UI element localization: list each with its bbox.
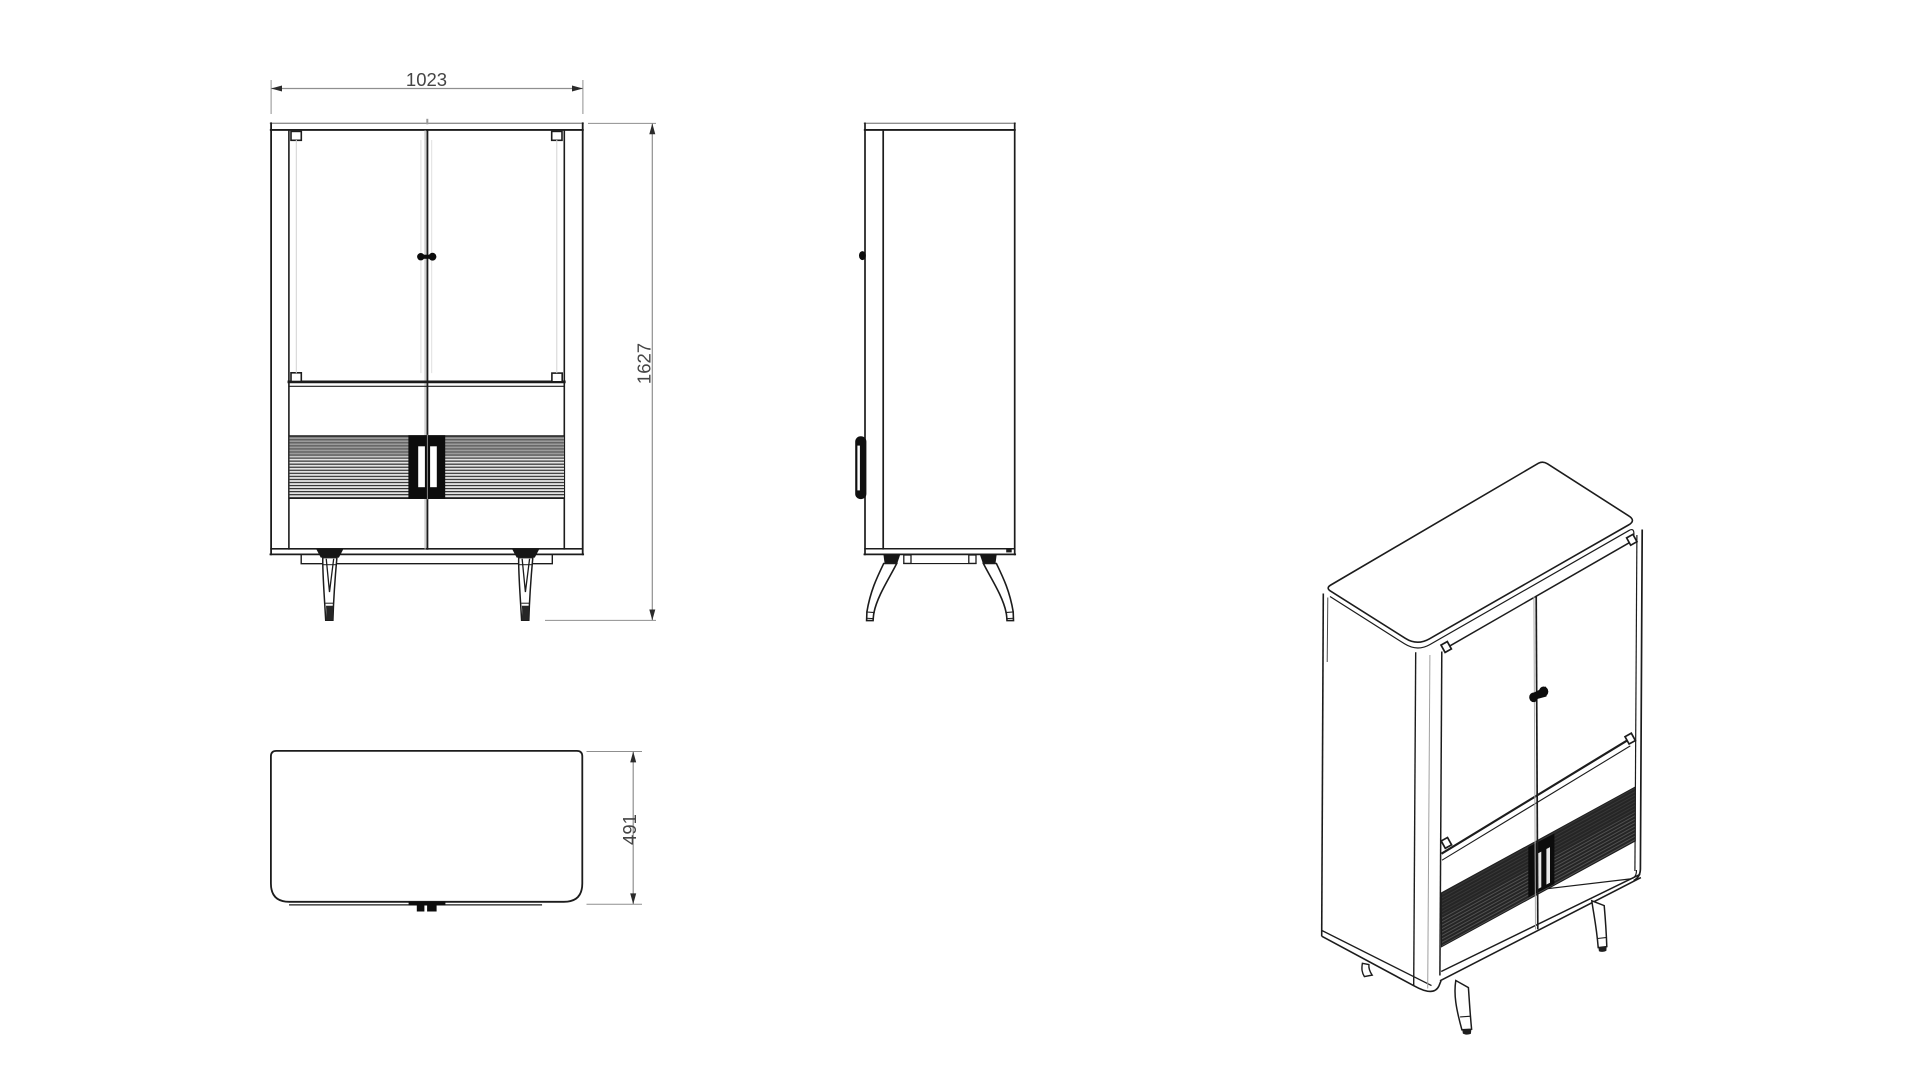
- svg-text:1627: 1627: [634, 343, 655, 384]
- svg-text:1023: 1023: [406, 69, 447, 90]
- svg-text:491: 491: [619, 814, 640, 845]
